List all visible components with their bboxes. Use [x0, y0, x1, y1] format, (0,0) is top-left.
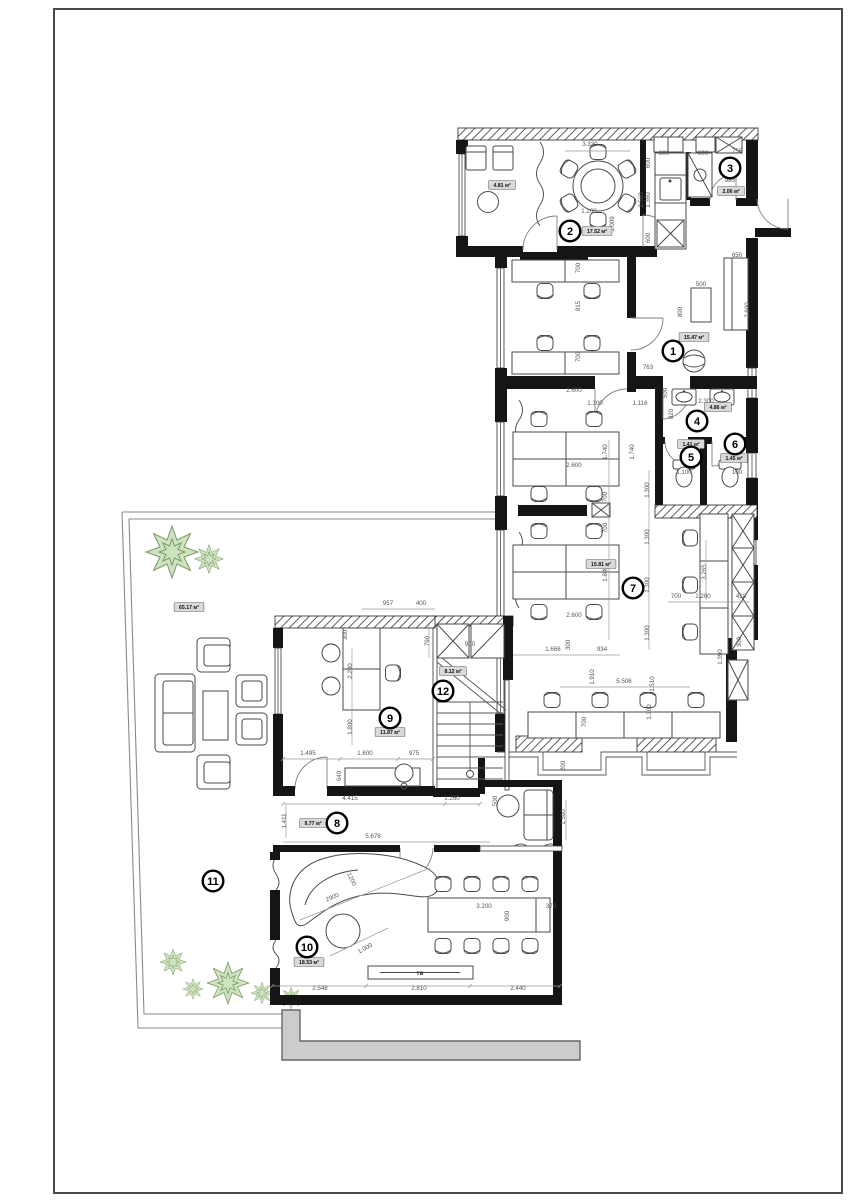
dimension-label: 1.000 — [357, 942, 374, 956]
svg-text:7: 7 — [630, 583, 636, 595]
dimension-label: 2.600 — [566, 387, 582, 394]
dimension-label: 200 — [560, 760, 567, 771]
dimension-label: 700 — [575, 262, 582, 273]
dimension-label: 640 — [336, 770, 343, 781]
svg-text:65.17 м²: 65.17 м² — [179, 605, 199, 611]
room-marker-6: 6 — [725, 434, 746, 455]
outdoor-armchair — [197, 755, 230, 789]
dimension-label: 800 — [698, 150, 709, 157]
terrace-furniture — [155, 638, 267, 789]
dimension-label: 400 — [416, 600, 427, 607]
dimension-label: 100 — [732, 469, 743, 476]
office-room-desks — [512, 260, 619, 374]
bush-icon — [160, 949, 186, 975]
area-label: 8.12 м² — [440, 667, 467, 676]
room-2-meeting-table — [559, 145, 638, 228]
svg-text:18.53 м²: 18.53 м² — [299, 960, 319, 966]
svg-text:17.52 м²: 17.52 м² — [587, 229, 607, 235]
room-marker-7: 7 — [623, 578, 644, 599]
dimension-label: 1.300 — [644, 577, 651, 593]
dimension-label: 790 — [424, 635, 431, 646]
dimension-label: 650 — [732, 252, 743, 259]
dimension-label: 815 — [575, 300, 582, 311]
dimension-label: 1.411 — [281, 813, 288, 829]
dimension-label: 4.415 — [342, 795, 358, 802]
tree-icon — [146, 526, 198, 578]
room-marker-4: 4 — [687, 411, 708, 432]
floor-plan-drawing: 3.3301.2001.0096002.5601.360600800800755… — [0, 0, 856, 1200]
dimension-label: 700 — [671, 593, 682, 600]
dimension-label: 2.600 — [566, 612, 582, 619]
svg-text:4: 4 — [694, 416, 701, 428]
misc-labels: тв — [416, 970, 423, 977]
room-1-reception — [683, 258, 748, 372]
dimension-label: 1.300 — [644, 625, 651, 641]
area-label: 9.77 м² — [300, 819, 327, 828]
svg-text:10: 10 — [301, 942, 313, 954]
stepped-parapet — [497, 752, 737, 770]
outdoor-armchair — [197, 638, 230, 672]
dimension-label: 700 — [575, 351, 582, 362]
svg-text:2: 2 — [567, 226, 573, 238]
svg-text:9.77 м²: 9.77 м² — [304, 821, 321, 827]
svg-text:12: 12 — [437, 686, 449, 698]
svg-text:4.86 м²: 4.86 м² — [709, 405, 726, 411]
room-marker-11: 11 — [203, 871, 224, 892]
sink — [672, 389, 696, 405]
room-marker-1: 1 — [663, 341, 684, 362]
chair — [322, 677, 340, 695]
dimension-label: 2.600 — [744, 302, 751, 318]
room-marker-3: 3 — [720, 158, 741, 179]
dimension-label: 600 — [645, 157, 652, 168]
room-marker-5: 5 — [681, 447, 702, 468]
dimension-label: 370 — [546, 903, 557, 910]
dimension-label: 763 — [643, 364, 654, 371]
room-marker-9: 9 — [380, 708, 401, 729]
dimension-label: 1.666 — [545, 646, 561, 653]
dimension-label: 1.390 — [717, 649, 724, 665]
dimension-label: 300 — [565, 639, 572, 650]
svg-text:5: 5 — [688, 452, 694, 464]
dimension-label: 1.100 — [676, 469, 692, 476]
svg-text:1: 1 — [670, 346, 676, 358]
dimension-label: 1.200 — [581, 208, 597, 215]
dimension-label: 900 — [504, 910, 511, 921]
dimension-label: 957 — [383, 600, 394, 607]
text-label: тв — [416, 970, 423, 977]
dimension-label: 300 — [736, 636, 743, 647]
dimension-label: 975 — [409, 750, 420, 757]
dimension-label: 5.678 — [365, 833, 381, 840]
dimension-label: 1.300 — [644, 529, 651, 545]
dimension-label: 1.510 — [649, 676, 656, 692]
room-marker-8: 8 — [327, 813, 348, 834]
storage-cabinet — [728, 514, 754, 700]
bush-icon — [207, 962, 249, 1004]
dimension-label: 934 — [597, 646, 608, 653]
svg-text:11: 11 — [207, 876, 219, 888]
round-side-table — [478, 192, 499, 213]
dimension-label: 1.600 — [357, 750, 373, 757]
room-number-markers: 123456789101112 — [203, 158, 746, 958]
dimension-label: 1.300 — [587, 400, 603, 407]
top-left-meeting-room — [466, 146, 513, 213]
dimension-label: 500 — [662, 387, 669, 398]
dimension-label: 3.330 — [582, 141, 598, 148]
dimension-label: 2.548 — [312, 985, 328, 992]
area-label: 4.81 м² — [489, 181, 516, 190]
dimension-label: 2.200 — [347, 663, 354, 679]
dimension-label: 418 — [736, 593, 747, 600]
dimension-label: 2.810 — [411, 985, 427, 992]
dimension-label: 800 — [677, 306, 684, 317]
dimension-label: 2.560 — [638, 192, 645, 208]
dimension-label: 1.300 — [644, 482, 651, 498]
area-label: 65.17 м² — [174, 603, 204, 612]
area-label: 15.47 м² — [679, 333, 709, 342]
room-9-office — [322, 628, 420, 789]
dimension-label: 2.440 — [510, 985, 526, 992]
walkway — [282, 1010, 580, 1060]
room-marker-12: 12 — [433, 681, 454, 702]
dimension-label: 500 — [492, 795, 499, 806]
dimension-label: 900 — [465, 641, 476, 648]
round-table — [326, 914, 360, 948]
dimension-label: 820 — [668, 408, 675, 419]
dimension-label: 1.116 — [632, 400, 648, 407]
svg-text:2.06 м²: 2.06 м² — [722, 189, 739, 195]
dimension-label: 1.740 — [629, 444, 636, 460]
dimension-label: 1.910 — [589, 669, 596, 685]
svg-text:8.12 м²: 8.12 м² — [444, 669, 461, 675]
dimension-label: 800 — [659, 150, 670, 157]
svg-text:1.45 м²: 1.45 м² — [725, 456, 742, 462]
dimension-label: 500 — [696, 281, 707, 288]
armchair — [493, 146, 513, 170]
svg-text:9: 9 — [387, 713, 393, 725]
dimension-label: 1.360 — [645, 192, 652, 208]
svg-text:8: 8 — [334, 818, 340, 830]
svg-text:3: 3 — [727, 163, 733, 175]
console-table — [724, 258, 748, 330]
room-marker-10: 10 — [297, 937, 318, 958]
dimension-label: 755 — [732, 148, 743, 155]
dimension-label: 700 — [602, 491, 609, 502]
armchair — [466, 146, 486, 170]
tree-icon — [195, 545, 224, 574]
area-label: 4.86 м² — [705, 403, 732, 412]
dimension-label: 1.495 — [300, 750, 316, 757]
office-chair — [386, 665, 401, 681]
bush-icon — [251, 982, 273, 1004]
dimension-label: 3.200 — [476, 903, 492, 910]
dimension-label: 5.506 — [616, 678, 632, 685]
side-table — [691, 288, 711, 322]
wall-desks — [700, 514, 728, 654]
dimension-label: 1.300 — [646, 704, 653, 720]
coffee-table — [203, 691, 228, 740]
svg-text:6: 6 — [732, 439, 738, 451]
basin — [395, 764, 413, 782]
dimension-label: 1.500 — [560, 809, 567, 825]
dimension-label: 2.600 — [566, 462, 582, 469]
dimension-label: 1.800 — [347, 719, 354, 735]
dimension-label: 700 — [602, 522, 609, 533]
round-side-table — [497, 795, 519, 817]
area-label: 18.53 м² — [294, 958, 324, 967]
area-label: 2.06 м² — [718, 187, 745, 196]
dimension-label: 3.265 — [701, 564, 708, 580]
dimension-label: 1.260 — [444, 795, 460, 802]
ottoman — [683, 350, 705, 372]
room-marker-2: 2 — [560, 221, 581, 242]
svg-text:15.81 м²: 15.81 м² — [591, 562, 611, 568]
svg-text:11.87 м²: 11.87 м² — [380, 730, 400, 736]
dimension-label: 600 — [645, 232, 652, 243]
dimension-label: 300 — [342, 629, 349, 640]
svg-text:4.81 м²: 4.81 м² — [493, 183, 510, 189]
chair — [322, 644, 340, 662]
svg-text:15.47 м²: 15.47 м² — [684, 335, 704, 341]
dimension-label: 1.200 — [695, 593, 711, 600]
corridor-lounge-niche — [497, 790, 553, 840]
dimension-label: 1.740 — [602, 444, 609, 460]
area-label: 15.81 м² — [586, 560, 616, 569]
dimension-label: 700 — [581, 716, 588, 727]
area-label: 17.52 м² — [582, 227, 612, 236]
bush-icon — [183, 979, 204, 1000]
